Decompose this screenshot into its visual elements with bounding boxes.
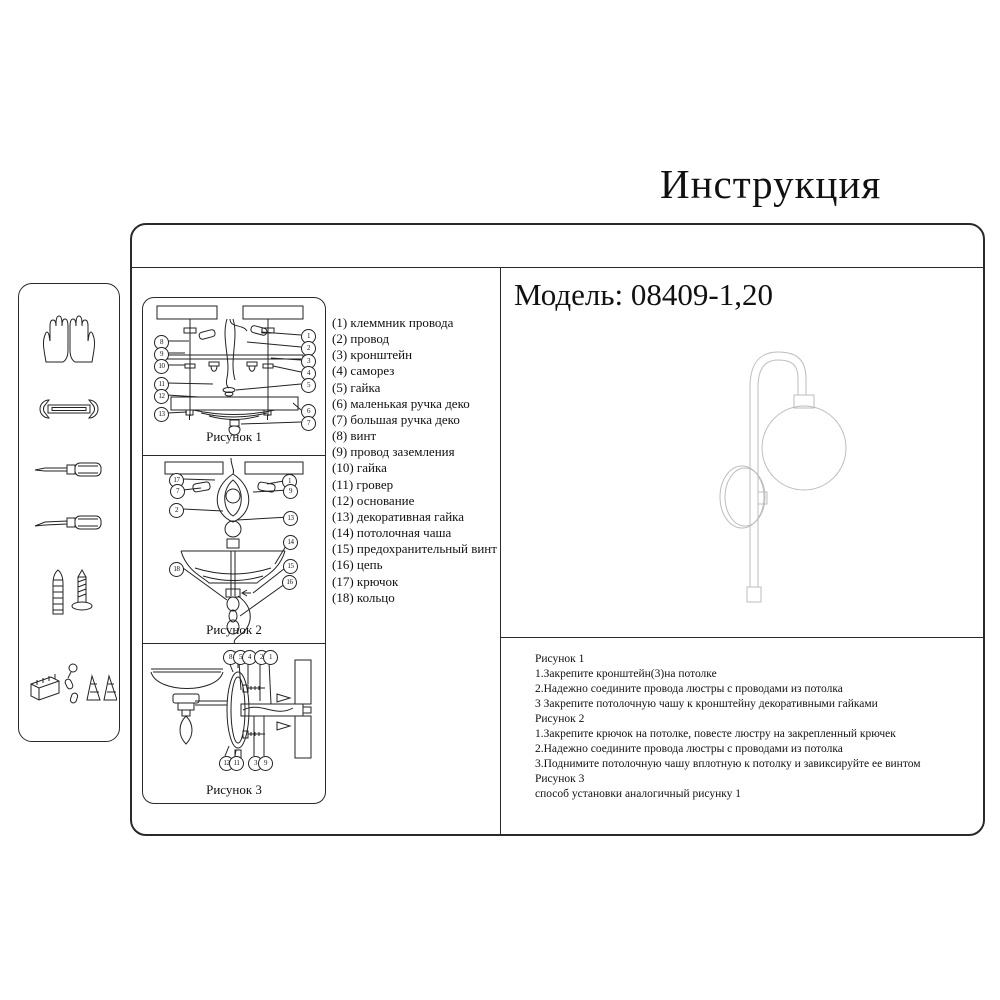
callout: 15 xyxy=(283,559,298,574)
callout: 1 xyxy=(263,650,278,665)
callout: 18 xyxy=(169,562,184,577)
instruction-line: 3.Поднимите потолочную чашу вплотную к п… xyxy=(535,757,990,772)
part-item: (5) гайка xyxy=(332,380,498,396)
instruction-line: Рисунок 2 xyxy=(535,712,990,727)
figures-panel: 8 9 10 11 12 13 1 2 3 4 5 6 7 Рисунок 1 xyxy=(142,297,326,804)
instruction-line: способ установки аналогичный рисунку 1 xyxy=(535,787,990,802)
instructions-text: Рисунок 11.Закрепите кронштейн(3)на пото… xyxy=(535,652,990,802)
callout: 11 xyxy=(229,756,244,771)
gloves-icon xyxy=(37,308,101,368)
callout: 16 xyxy=(282,575,297,590)
figure-2-caption: Рисунок 2 xyxy=(143,622,325,638)
divider xyxy=(132,267,983,268)
wall-lamp-drawing xyxy=(702,347,862,607)
instruction-line: 2.Надежно соедините провода люстры с про… xyxy=(535,742,990,757)
screwdriver-icon xyxy=(33,456,105,482)
callout: 10 xyxy=(154,359,169,374)
page-title: Инструкция xyxy=(660,160,881,208)
instruction-line: Рисунок 3 xyxy=(535,772,990,787)
part-item: (11) гровер xyxy=(332,477,498,493)
part-item: (6) маленькая ручка деко xyxy=(332,396,498,412)
figure-3-caption: Рисунок 3 xyxy=(143,782,325,798)
part-item: (15) предохранительный винт xyxy=(332,541,498,557)
figure-3: 8 5 4 2 1 12 11 3 9 Рисунок 3 xyxy=(143,643,325,804)
divider xyxy=(500,267,501,834)
instruction-line: 1.Закрепите крючок на потолке, повесте л… xyxy=(535,727,990,742)
part-item: (17) крючок xyxy=(332,574,498,590)
callout: 7 xyxy=(170,484,185,499)
instruction-line: Рисунок 1 xyxy=(535,652,990,667)
screwdriver-icon xyxy=(33,510,105,536)
model-label: Модель: 08409-1,20 xyxy=(514,277,773,313)
figure-1: 8 9 10 11 12 13 1 2 3 4 5 6 7 Рисунок 1 xyxy=(143,298,325,455)
part-item: (3) кронштейн xyxy=(332,347,498,363)
wrench-icon xyxy=(33,394,105,424)
part-item: (16) цепь xyxy=(332,557,498,573)
part-item: (2) провод xyxy=(332,331,498,347)
parts-list: (1) клеммник провода(2) провод(3) кроншт… xyxy=(332,315,498,606)
callout: 2 xyxy=(169,503,184,518)
figure-3-drawing xyxy=(143,644,325,804)
part-item: (8) винт xyxy=(332,428,498,444)
tools-panel xyxy=(18,283,120,742)
part-item: (13) декоративная гайка xyxy=(332,509,498,525)
part-item: (7) большая ручка деко xyxy=(332,412,498,428)
part-item: (9) провод заземления xyxy=(332,444,498,460)
instruction-sheet: Инструкция xyxy=(0,0,1000,1000)
callout: 9 xyxy=(283,484,298,499)
instruction-line: 3 Закрепите потолочную чашу к кронштейну… xyxy=(535,697,990,712)
callout: 14 xyxy=(283,535,298,550)
main-frame: Модель: 08409-1,20 xyxy=(130,223,985,836)
anchor-screw-icon xyxy=(45,568,97,618)
divider xyxy=(500,637,983,638)
callout: 12 xyxy=(154,389,169,404)
callout: 13 xyxy=(154,407,169,422)
part-item: (18) кольцо xyxy=(332,590,498,606)
callout: 5 xyxy=(301,378,316,393)
hardware-parts-icon xyxy=(25,652,117,710)
figure-1-caption: Рисунок 1 xyxy=(143,429,325,445)
instruction-line: 1.Закрепите кронштейн(3)на потолке xyxy=(535,667,990,682)
part-item: (1) клеммник провода xyxy=(332,315,498,331)
instruction-line: 2.Надежно соедините провода люстры с про… xyxy=(535,682,990,697)
part-item: (12) основание xyxy=(332,493,498,509)
part-item: (10) гайка xyxy=(332,460,498,476)
figure-2: 17 7 2 18 1 9 13 14 15 16 Рисунок 2 xyxy=(143,455,325,644)
callout: 9 xyxy=(258,756,273,771)
part-item: (14) потолочная чаша xyxy=(332,525,498,541)
part-item: (4) саморез xyxy=(332,363,498,379)
callout: 13 xyxy=(283,511,298,526)
